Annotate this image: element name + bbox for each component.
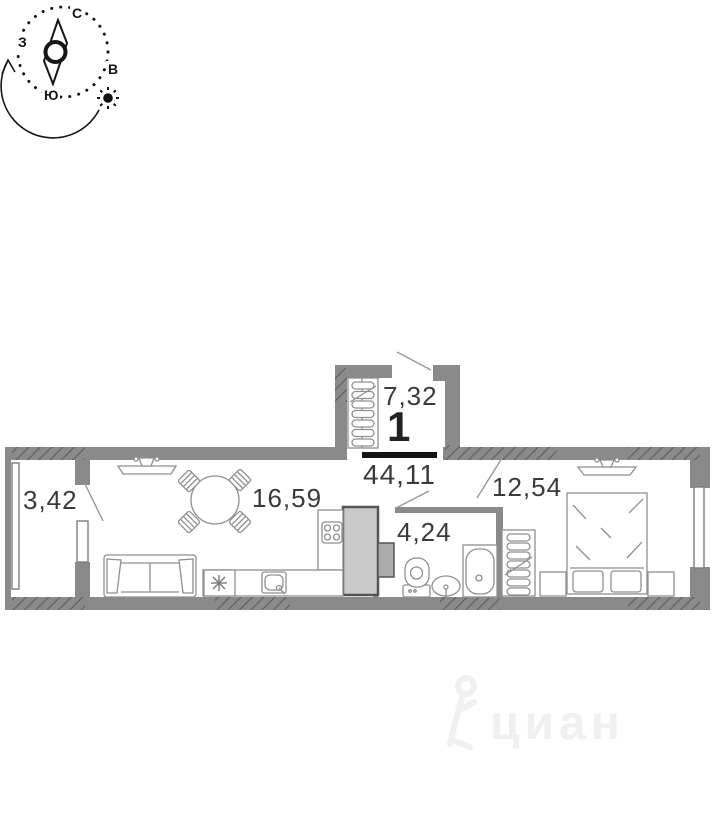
bathroom-fixtures [403,545,497,597]
total-area-underline [362,452,437,458]
compass-west-label: З [16,34,29,50]
sun-icon [97,87,119,109]
total-area-label: 44,11 [363,461,436,489]
kitchen-sink [262,572,286,594]
washbasin [432,576,460,597]
wardrobe-radiator [502,530,535,596]
bathroom-door-leaf [378,543,394,577]
balcony-area-label: 3,42 [23,487,78,513]
watermark-icon [450,678,474,747]
toilet [403,558,430,597]
compass-rose [1,7,119,138]
fridge [204,570,235,596]
bedroom-area-label: 12,54 [492,474,562,500]
compass-north-label: С [70,5,84,21]
sofa [104,555,196,597]
nightstand-right [648,572,674,596]
floor-plan-page: С В Ю З 7,32 1 44,11 3,42 16,59 4,24 12,… [0,0,720,840]
nightstand-left [540,572,566,596]
living-area-label: 16,59 [252,485,322,511]
bathtub [463,545,497,597]
compass-needle [44,20,67,84]
bed [567,493,647,594]
compass-south-label: Ю [42,87,60,103]
vent-shaft [343,507,378,595]
tv-bedroom [578,458,636,475]
watermark-brand: циан [490,700,625,748]
bathroom-area-label: 4,24 [397,519,452,545]
compass-east-label: В [106,61,120,77]
hall-radiator [348,378,378,448]
stove [322,522,342,543]
apartment-number: 1 [387,406,410,448]
